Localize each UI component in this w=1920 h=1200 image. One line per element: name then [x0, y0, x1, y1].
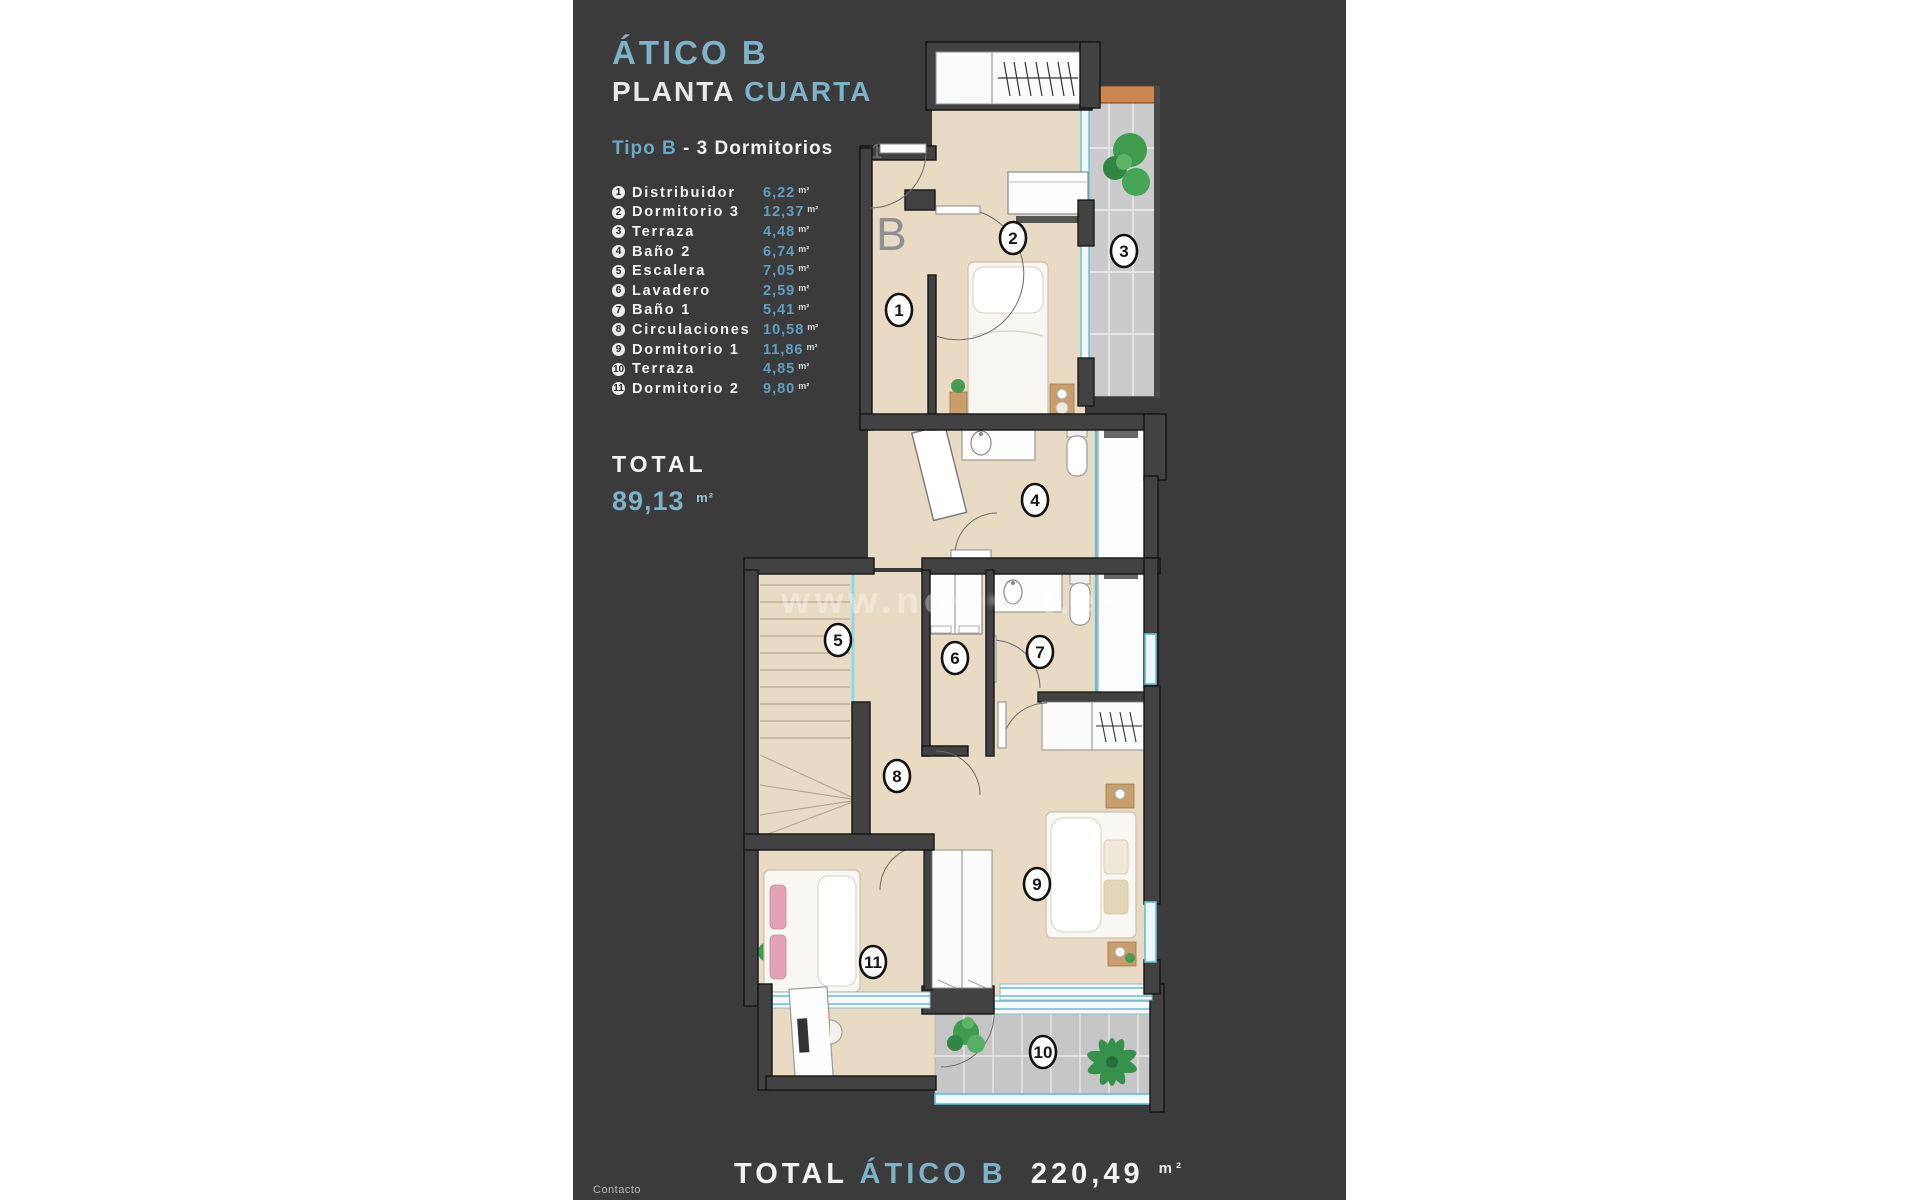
- svg-text:3: 3: [1119, 242, 1128, 261]
- room-number-badge: 10: [612, 363, 625, 376]
- footer-total-value: 220,49: [1031, 1158, 1144, 1190]
- wall-jamb-upper: [1078, 200, 1094, 246]
- footer-total: TOTAL ÁTICO B 220,49 m²: [573, 1158, 1346, 1191]
- type-accent: Tipo B: [612, 138, 677, 159]
- room-number-badge: 3: [612, 225, 625, 238]
- room-number-badge: 8: [612, 323, 625, 336]
- total-value-number: 89,13: [612, 486, 685, 516]
- closet-top: [926, 42, 1092, 110]
- footer-contact: Contacto: [593, 1184, 641, 1196]
- room-number-badge: 2: [612, 206, 625, 219]
- brochure-panel: ÁTICO B PLANTA CUARTA Tipo B - 3 Dormito…: [573, 0, 1346, 1200]
- footer-total-unit: m²: [1159, 1160, 1185, 1177]
- room-number-badge: 6: [612, 284, 625, 297]
- block-letter: B: [876, 208, 907, 260]
- room-number-badge: 11: [612, 382, 625, 395]
- svg-text:4: 4: [1030, 491, 1040, 510]
- footer-total-name: ÁTICO B: [860, 1158, 1007, 1190]
- subtitle-white: PLANTA: [612, 76, 734, 107]
- room-number-badge: 9: [612, 343, 625, 356]
- svg-text:6: 6: [950, 649, 959, 668]
- svg-text:5: 5: [833, 631, 842, 650]
- svg-text:2: 2: [1008, 229, 1017, 248]
- svg-text:8: 8: [892, 767, 901, 786]
- room2-door-leaf: [936, 206, 980, 214]
- room-number-badge: 1: [612, 186, 625, 199]
- watermark-suffix: t.es: [1041, 580, 1125, 621]
- faint-number: 1: [871, 141, 882, 163]
- room-number-badge: 4: [612, 245, 625, 258]
- svg-text:1: 1: [894, 301, 903, 320]
- svg-text:7: 7: [1035, 643, 1044, 662]
- watermark-prefix: www.no: [781, 580, 951, 621]
- svg-text:10: 10: [1034, 1043, 1053, 1062]
- watermark: www.no•••••t.es: [781, 580, 1125, 622]
- room-number-badge: 5: [612, 265, 625, 278]
- wall-jamb-lower: [1078, 358, 1094, 406]
- svg-text:9: 9: [1032, 875, 1041, 894]
- total-value-unit: m²: [696, 490, 714, 505]
- room-number-badge: 7: [612, 304, 625, 317]
- watermark-obscured: •••••: [951, 580, 1041, 621]
- svg-text:11: 11: [864, 953, 882, 972]
- entry-door-leaf: [880, 144, 926, 153]
- footer-total-label: TOTAL: [734, 1158, 847, 1190]
